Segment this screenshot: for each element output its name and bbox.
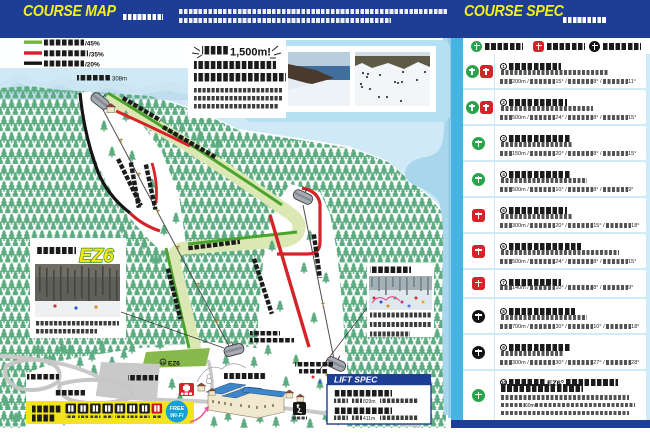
svg-text:10: 10 [161, 360, 166, 365]
svg-text:LIFT SPEC: LIFT SPEC [334, 375, 378, 385]
svg-text:EZ6: EZ6 [168, 361, 180, 368]
svg-text:411m: 411m [363, 416, 375, 422]
svg-text:829m: 829m [363, 399, 376, 405]
svg-text:/20%: /20% [85, 62, 100, 69]
svg-text:EZ6: EZ6 [79, 246, 114, 267]
svg-text:1,500m!: 1,500m! [230, 47, 271, 59]
svg-text:/45%: /45% [85, 41, 100, 48]
svg-text:/35%: /35% [89, 51, 104, 58]
svg-text:FREE: FREE [169, 406, 184, 412]
svg-text:Wi-Fi: Wi-Fi [170, 413, 184, 419]
svg-text:308m: 308m [112, 77, 127, 83]
